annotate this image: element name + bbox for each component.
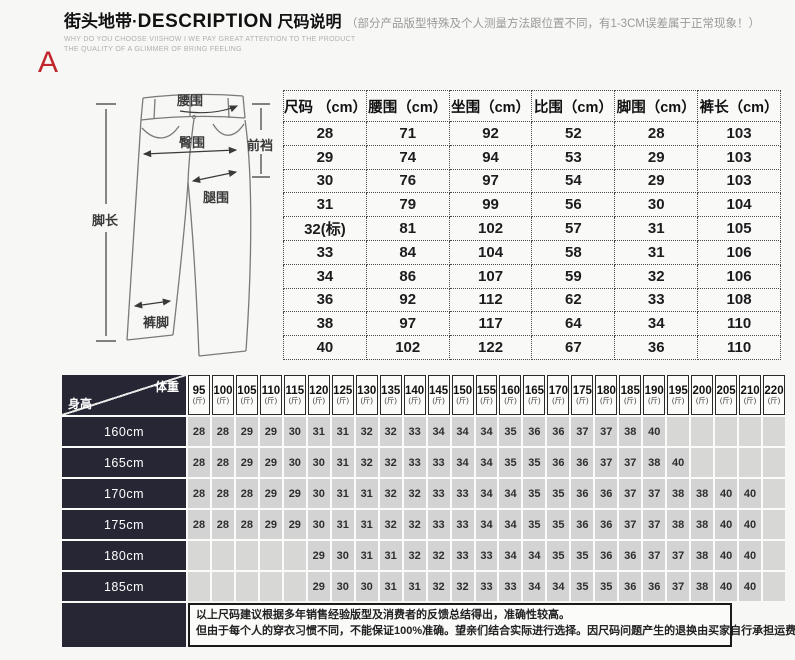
matrix-size-cell: 36	[547, 448, 569, 477]
matrix-size-cell	[763, 541, 785, 570]
size-cell: 30	[284, 169, 367, 193]
matrix-size-cell: 34	[428, 417, 450, 446]
size-cell: 104	[449, 240, 532, 264]
height-header-cell: 165cm	[62, 448, 186, 477]
weight-unit: (斤)	[648, 397, 661, 405]
footer-note-line2: 但由于每个人的穿衣习惯不同，不能保证100%准确。望亲们结合实际进行选择。因尺码…	[196, 624, 724, 640]
size-cell: 79	[366, 193, 449, 217]
weight-header-cell: 205(斤)	[715, 375, 737, 415]
matrix-size-cell: 33	[428, 479, 450, 508]
weight-header-cell: 165(斤)	[523, 375, 545, 415]
footer-note-line1: 以上尺码建议根据多年销售经验版型及消费者的反馈总结得出，准确性较高。	[196, 608, 724, 624]
weight-header-cell: 130(斤)	[356, 375, 378, 415]
matrix-size-cell: 33	[476, 541, 498, 570]
matrix-size-cell: 40	[643, 417, 665, 446]
matrix-size-cell: 31	[356, 479, 378, 508]
matrix-size-cell: 37	[667, 572, 689, 601]
matrix-size-cell: 40	[715, 572, 737, 601]
size-cell: 74	[366, 145, 449, 169]
matrix-size-cell: 31	[332, 510, 354, 539]
matrix-size-cell: 34	[547, 572, 569, 601]
matrix-size-cell: 28	[188, 448, 210, 477]
size-cell: 108	[698, 288, 781, 312]
size-cell: 59	[532, 264, 615, 288]
height-header-cell: 185cm	[62, 572, 186, 601]
matrix-size-cell: 38	[691, 572, 713, 601]
pants-diagram: 腰围 臀围 前裆 腿围 脚长 裤脚	[85, 84, 280, 369]
weight-unit: (斤)	[576, 397, 589, 405]
matrix-size-cell: 34	[476, 479, 498, 508]
size-cell: 52	[532, 122, 615, 146]
matrix-size-cell: 28	[236, 479, 258, 508]
weight-unit: (斤)	[289, 397, 302, 405]
weight-header-cell: 175(斤)	[571, 375, 593, 415]
weight-header-cell: 160(斤)	[499, 375, 521, 415]
weight-unit: (斤)	[456, 397, 469, 405]
weight-header-cell: 95(斤)	[188, 375, 210, 415]
matrix-section: 体重 身高 95(斤)100(斤)105(斤)110(斤)115(斤)120(斤…	[62, 375, 785, 647]
matrix-size-cell: 33	[476, 572, 498, 601]
size-cell: 106	[698, 264, 781, 288]
weight-header-cell: 195(斤)	[667, 375, 689, 415]
matrix-size-cell: 29	[308, 572, 330, 601]
matrix-size-cell: 33	[499, 572, 521, 601]
size-cell: 76	[366, 169, 449, 193]
size-cell: 84	[366, 240, 449, 264]
matrix-size-cell	[236, 572, 258, 601]
weight-unit: (斤)	[193, 397, 206, 405]
matrix-size-cell: 34	[452, 448, 474, 477]
height-header-cell: 170cm	[62, 479, 186, 508]
size-table-row: 2974945329103	[284, 145, 781, 169]
height-header-cell: 180cm	[62, 541, 186, 570]
matrix-size-cell: 35	[523, 510, 545, 539]
matrix-size-cell: 36	[595, 541, 617, 570]
matrix-size-cell: 33	[428, 510, 450, 539]
size-cell: 28	[615, 122, 698, 146]
matrix-size-cell: 34	[499, 479, 521, 508]
matrix-size-cell: 32	[404, 479, 426, 508]
matrix-size-cell: 34	[476, 448, 498, 477]
brand-name: 街头地带	[64, 12, 132, 31]
matrix-size-cell: 37	[595, 448, 617, 477]
thigh-label: 腿围	[203, 187, 229, 206]
weight-unit: (斤)	[336, 397, 349, 405]
matrix-grid: 体重 身高 95(斤)100(斤)105(斤)110(斤)115(斤)120(斤…	[62, 375, 785, 601]
matrix-size-cell: 31	[356, 541, 378, 570]
matrix-size-cell: 29	[260, 510, 282, 539]
size-column-header: 坐围（cm）	[449, 91, 532, 122]
weight-unit: (斤)	[552, 397, 565, 405]
size-cell: 92	[366, 288, 449, 312]
matrix-size-cell: 32	[428, 572, 450, 601]
matrix-size-cell: 35	[547, 510, 569, 539]
matrix-size-cell: 36	[571, 448, 593, 477]
weight-unit: (斤)	[600, 397, 613, 405]
matrix-size-cell	[284, 572, 306, 601]
matrix-size-cell: 31	[332, 479, 354, 508]
size-cell: 103	[698, 122, 781, 146]
matrix-size-cell: 40	[715, 479, 737, 508]
size-cell: 34	[615, 312, 698, 336]
subtitle-en: WHY DO YOU CHOOSE VIISHOW I WE PAY GREAT…	[64, 35, 784, 56]
matrix-size-cell	[739, 417, 761, 446]
weight-unit: (斤)	[265, 397, 278, 405]
matrix-size-cell	[260, 541, 282, 570]
weight-unit: (斤)	[768, 397, 781, 405]
section-marker-a: A	[38, 46, 58, 80]
matrix-size-cell: 29	[308, 541, 330, 570]
matrix-size-cell: 31	[380, 572, 402, 601]
matrix-size-cell: 32	[452, 572, 474, 601]
height-header-cell: 160cm	[62, 417, 186, 446]
matrix-footer-row: 以上尺码建议根据多年销售经验版型及消费者的反馈总结得出，准确性较高。 但由于每个…	[62, 603, 785, 647]
size-cell: 105	[698, 217, 781, 241]
matrix-size-cell: 37	[571, 417, 593, 446]
size-cell: 71	[366, 122, 449, 146]
weight-header-cell: 170(斤)	[547, 375, 569, 415]
matrix-size-cell	[236, 541, 258, 570]
matrix-size-cell: 32	[356, 417, 378, 446]
matrix-size-cell: 34	[476, 510, 498, 539]
size-cell: 107	[449, 264, 532, 288]
weight-unit: (斤)	[384, 397, 397, 405]
weight-unit: (斤)	[217, 397, 230, 405]
matrix-size-cell: 33	[452, 479, 474, 508]
size-cell: 67	[532, 336, 615, 360]
size-cell: 57	[532, 217, 615, 241]
weight-header-cell: 110(斤)	[260, 375, 282, 415]
matrix-size-cell: 28	[236, 510, 258, 539]
matrix-size-cell: 33	[404, 417, 426, 446]
size-table-row: 36921126233108	[284, 288, 781, 312]
matrix-size-cell	[212, 541, 234, 570]
height-axis-label: 身高	[68, 395, 92, 412]
size-cell: 102	[366, 336, 449, 360]
matrix-size-cell: 35	[499, 448, 521, 477]
size-cell: 110	[698, 336, 781, 360]
size-cell: 28	[284, 122, 367, 146]
size-column-header: 尺码 （cm）	[284, 91, 367, 122]
size-cell: 97	[366, 312, 449, 336]
matrix-size-cell: 30	[332, 541, 354, 570]
size-cell: 33	[615, 288, 698, 312]
weight-header-cell: 135(斤)	[380, 375, 402, 415]
size-cell: 122	[449, 336, 532, 360]
size-cell: 81	[366, 217, 449, 241]
weight-unit: (斤)	[241, 397, 254, 405]
size-column-header: 裤长（cm）	[698, 91, 781, 122]
weight-header-cell: 190(斤)	[643, 375, 665, 415]
size-cell: 36	[615, 336, 698, 360]
matrix-size-cell: 32	[356, 448, 378, 477]
matrix-size-cell: 31	[332, 417, 354, 446]
matrix-size-cell: 30	[332, 572, 354, 601]
matrix-size-cell: 34	[499, 541, 521, 570]
matrix-size-cell	[715, 417, 737, 446]
matrix-corner-cell: 体重 身高	[62, 375, 186, 415]
matrix-size-cell: 37	[619, 510, 641, 539]
size-table-header-row: 尺码 （cm）腰围（cm）坐围（cm）比围（cm）脚围（cm）裤长（cm）	[284, 91, 781, 122]
matrix-size-cell: 32	[404, 510, 426, 539]
matrix-size-cell: 34	[452, 417, 474, 446]
matrix-size-cell: 38	[667, 510, 689, 539]
matrix-size-cell: 31	[308, 417, 330, 446]
page-title: 街头地带·DESCRIPTION 尺码说明 （部分产品版型特殊及个人测量方法跟位…	[64, 10, 784, 34]
matrix-size-cell: 37	[667, 541, 689, 570]
size-cell: 62	[532, 288, 615, 312]
matrix-size-cell: 30	[308, 448, 330, 477]
matrix-size-cell: 32	[380, 510, 402, 539]
weight-unit: (斤)	[624, 397, 637, 405]
size-cell: 53	[532, 145, 615, 169]
size-cell: 99	[449, 193, 532, 217]
size-cell: 32(标)	[284, 217, 367, 241]
matrix-size-cell: 35	[499, 417, 521, 446]
weight-unit: (斤)	[432, 397, 445, 405]
size-table-row: 38971176434110	[284, 312, 781, 336]
matrix-size-cell	[763, 479, 785, 508]
matrix-size-cell: 28	[188, 417, 210, 446]
size-table-row: 3179995630104	[284, 193, 781, 217]
weight-header-cell: 125(斤)	[332, 375, 354, 415]
matrix-size-cell: 33	[452, 510, 474, 539]
size-cell: 38	[284, 312, 367, 336]
matrix-size-cell	[763, 417, 785, 446]
matrix-size-cell: 30	[284, 417, 306, 446]
leg-opening-arrow	[135, 301, 170, 306]
matrix-size-cell: 35	[523, 479, 545, 508]
leg-length-label: 脚长	[92, 210, 118, 229]
matrix-size-cell: 34	[523, 572, 545, 601]
matrix-size-cell: 35	[547, 479, 569, 508]
size-table-section: 尺码 （cm）腰围（cm）坐围（cm）比围（cm）脚围（cm）裤长（cm） 28…	[283, 90, 781, 360]
matrix-size-cell: 38	[643, 448, 665, 477]
matrix-size-cell: 38	[691, 479, 713, 508]
matrix-size-cell: 38	[619, 417, 641, 446]
weight-unit: (斤)	[408, 397, 421, 405]
matrix-size-cell	[739, 448, 761, 477]
matrix-size-cell: 36	[595, 510, 617, 539]
matrix-size-cell	[260, 572, 282, 601]
weight-unit: (斤)	[720, 397, 733, 405]
matrix-size-cell: 36	[619, 572, 641, 601]
matrix-size-cell: 28	[212, 479, 234, 508]
matrix-size-cell: 36	[571, 510, 593, 539]
size-table-body: 2871925228103297494532910330769754291033…	[284, 122, 781, 360]
matrix-size-cell: 36	[571, 479, 593, 508]
title-note: （部分产品版型特殊及个人测量方法跟位置不同，有1-3CM误差属于正常现象！）	[346, 18, 760, 30]
matrix-size-cell: 31	[356, 510, 378, 539]
weight-unit: (斤)	[528, 397, 541, 405]
size-cell: 32	[615, 264, 698, 288]
size-cell: 31	[284, 193, 367, 217]
matrix-size-cell	[691, 417, 713, 446]
matrix-size-cell: 31	[332, 448, 354, 477]
matrix-size-cell: 30	[308, 479, 330, 508]
size-cell: 36	[284, 288, 367, 312]
size-table-row: 2871925228103	[284, 122, 781, 146]
matrix-size-cell: 32	[428, 541, 450, 570]
weight-header-cell: 155(斤)	[476, 375, 498, 415]
matrix-size-cell: 29	[260, 448, 282, 477]
size-column-header: 脚围（cm）	[615, 91, 698, 122]
thigh-arrow	[193, 172, 236, 181]
footer-dark-cell	[62, 603, 186, 647]
matrix-size-cell: 28	[188, 510, 210, 539]
matrix-size-cell	[715, 448, 737, 477]
matrix-size-cell: 33	[452, 541, 474, 570]
matrix-size-cell: 35	[595, 572, 617, 601]
size-cell: 117	[449, 312, 532, 336]
weight-header-cell: 115(斤)	[284, 375, 306, 415]
size-cell: 31	[615, 240, 698, 264]
matrix-size-cell: 35	[571, 572, 593, 601]
weight-unit: (斤)	[480, 397, 493, 405]
matrix-size-cell: 32	[380, 417, 402, 446]
size-cell: 33	[284, 240, 367, 264]
matrix-size-cell: 38	[691, 510, 713, 539]
weight-header-cell: 210(斤)	[739, 375, 761, 415]
size-cell: 64	[532, 312, 615, 336]
page-header: 街头地带·DESCRIPTION 尺码说明 （部分产品版型特殊及个人测量方法跟位…	[64, 10, 784, 56]
size-table-row: 3076975429103	[284, 169, 781, 193]
size-cell: 86	[366, 264, 449, 288]
front-rise-label: 前裆	[247, 135, 273, 154]
matrix-size-cell: 36	[619, 541, 641, 570]
size-cell: 30	[615, 193, 698, 217]
weight-axis-label: 体重	[155, 378, 179, 395]
matrix-size-cell: 37	[643, 479, 665, 508]
size-cell: 103	[698, 145, 781, 169]
matrix-size-cell: 34	[523, 541, 545, 570]
matrix-size-cell	[188, 541, 210, 570]
matrix-size-cell: 35	[523, 448, 545, 477]
matrix-size-cell: 30	[308, 510, 330, 539]
weight-header-cell: 220(斤)	[763, 375, 785, 415]
matrix-size-cell: 38	[691, 541, 713, 570]
matrix-size-cell: 32	[380, 448, 402, 477]
matrix-size-cell: 34	[499, 510, 521, 539]
weight-header-cell: 120(斤)	[308, 375, 330, 415]
matrix-size-cell: 40	[739, 541, 761, 570]
matrix-size-cell: 37	[619, 479, 641, 508]
matrix-size-cell	[212, 572, 234, 601]
matrix-size-cell	[763, 572, 785, 601]
size-table-row: 401021226736110	[284, 336, 781, 360]
matrix-size-cell: 35	[547, 541, 569, 570]
matrix-size-cell: 32	[404, 541, 426, 570]
matrix-size-cell: 34	[476, 417, 498, 446]
size-cell: 97	[449, 169, 532, 193]
weight-header-cell: 140(斤)	[404, 375, 426, 415]
size-table-row: 32(标)811025731105	[284, 217, 781, 241]
matrix-size-cell: 31	[380, 541, 402, 570]
matrix-size-cell: 28	[212, 510, 234, 539]
weight-header-cell: 145(斤)	[428, 375, 450, 415]
size-column-header: 比围（cm）	[532, 91, 615, 122]
matrix-size-cell	[667, 417, 689, 446]
size-table: 尺码 （cm）腰围（cm）坐围（cm）比围（cm）脚围（cm）裤长（cm） 28…	[283, 90, 781, 360]
size-cell: 112	[449, 288, 532, 312]
size-cell: 31	[615, 217, 698, 241]
size-cell: 94	[449, 145, 532, 169]
weight-unit: (斤)	[744, 397, 757, 405]
size-cell: 102	[449, 217, 532, 241]
matrix-size-cell: 29	[236, 448, 258, 477]
matrix-size-cell: 33	[404, 448, 426, 477]
matrix-size-cell: 36	[547, 417, 569, 446]
matrix-size-cell: 32	[380, 479, 402, 508]
size-cell: 29	[615, 169, 698, 193]
size-column-header: 腰围（cm）	[366, 91, 449, 122]
weight-header-cell: 180(斤)	[595, 375, 617, 415]
size-cell: 106	[698, 240, 781, 264]
weight-header-cell: 100(斤)	[212, 375, 234, 415]
size-cell: 54	[532, 169, 615, 193]
matrix-size-cell: 40	[667, 448, 689, 477]
footer-note: 以上尺码建议根据多年销售经验版型及消费者的反馈总结得出，准确性较高。 但由于每个…	[188, 603, 732, 647]
matrix-size-cell: 29	[284, 510, 306, 539]
matrix-size-cell: 28	[212, 448, 234, 477]
matrix-size-cell	[763, 448, 785, 477]
matrix-size-cell: 40	[715, 541, 737, 570]
subtitle-line2: THE QUALITY OF A GLIMMER OF BRING FEELIN…	[64, 45, 784, 56]
matrix-size-cell: 31	[404, 572, 426, 601]
title-english: DESCRIPTION	[138, 11, 273, 32]
matrix-size-cell: 37	[643, 510, 665, 539]
matrix-size-cell: 35	[571, 541, 593, 570]
matrix-size-cell	[284, 541, 306, 570]
leg-opening-label: 裤脚	[143, 312, 169, 331]
waist-label: 腰围	[177, 90, 203, 109]
matrix-size-cell: 40	[715, 510, 737, 539]
size-cell: 58	[532, 240, 615, 264]
matrix-size-cell: 36	[595, 479, 617, 508]
weight-unit: (斤)	[313, 397, 326, 405]
size-table-row: 33841045831106	[284, 240, 781, 264]
size-cell: 92	[449, 122, 532, 146]
matrix-size-cell: 37	[619, 448, 641, 477]
matrix-size-cell: 37	[643, 541, 665, 570]
matrix-size-cell: 30	[356, 572, 378, 601]
hip-label: 臀围	[179, 132, 205, 151]
weight-header-cell: 150(斤)	[452, 375, 474, 415]
matrix-size-cell	[188, 572, 210, 601]
height-header-cell: 175cm	[62, 510, 186, 539]
matrix-size-cell: 40	[739, 572, 761, 601]
matrix-size-cell: 30	[284, 448, 306, 477]
matrix-size-cell: 33	[428, 448, 450, 477]
size-cell: 103	[698, 169, 781, 193]
matrix-size-cell: 36	[643, 572, 665, 601]
weight-header-cell: 185(斤)	[619, 375, 641, 415]
matrix-size-cell: 36	[523, 417, 545, 446]
matrix-size-cell: 29	[260, 417, 282, 446]
matrix-size-cell: 38	[667, 479, 689, 508]
matrix-size-cell: 29	[236, 417, 258, 446]
size-cell: 104	[698, 193, 781, 217]
weight-unit: (斤)	[696, 397, 709, 405]
matrix-size-cell: 29	[284, 479, 306, 508]
size-cell: 34	[284, 264, 367, 288]
matrix-size-cell: 29	[260, 479, 282, 508]
size-cell: 40	[284, 336, 367, 360]
subtitle-line1: WHY DO YOU CHOOSE VIISHOW I WE PAY GREAT…	[64, 35, 784, 46]
title-chinese: 尺码说明	[277, 14, 341, 31]
weight-header-cell: 200(斤)	[691, 375, 713, 415]
matrix-size-cell	[763, 510, 785, 539]
